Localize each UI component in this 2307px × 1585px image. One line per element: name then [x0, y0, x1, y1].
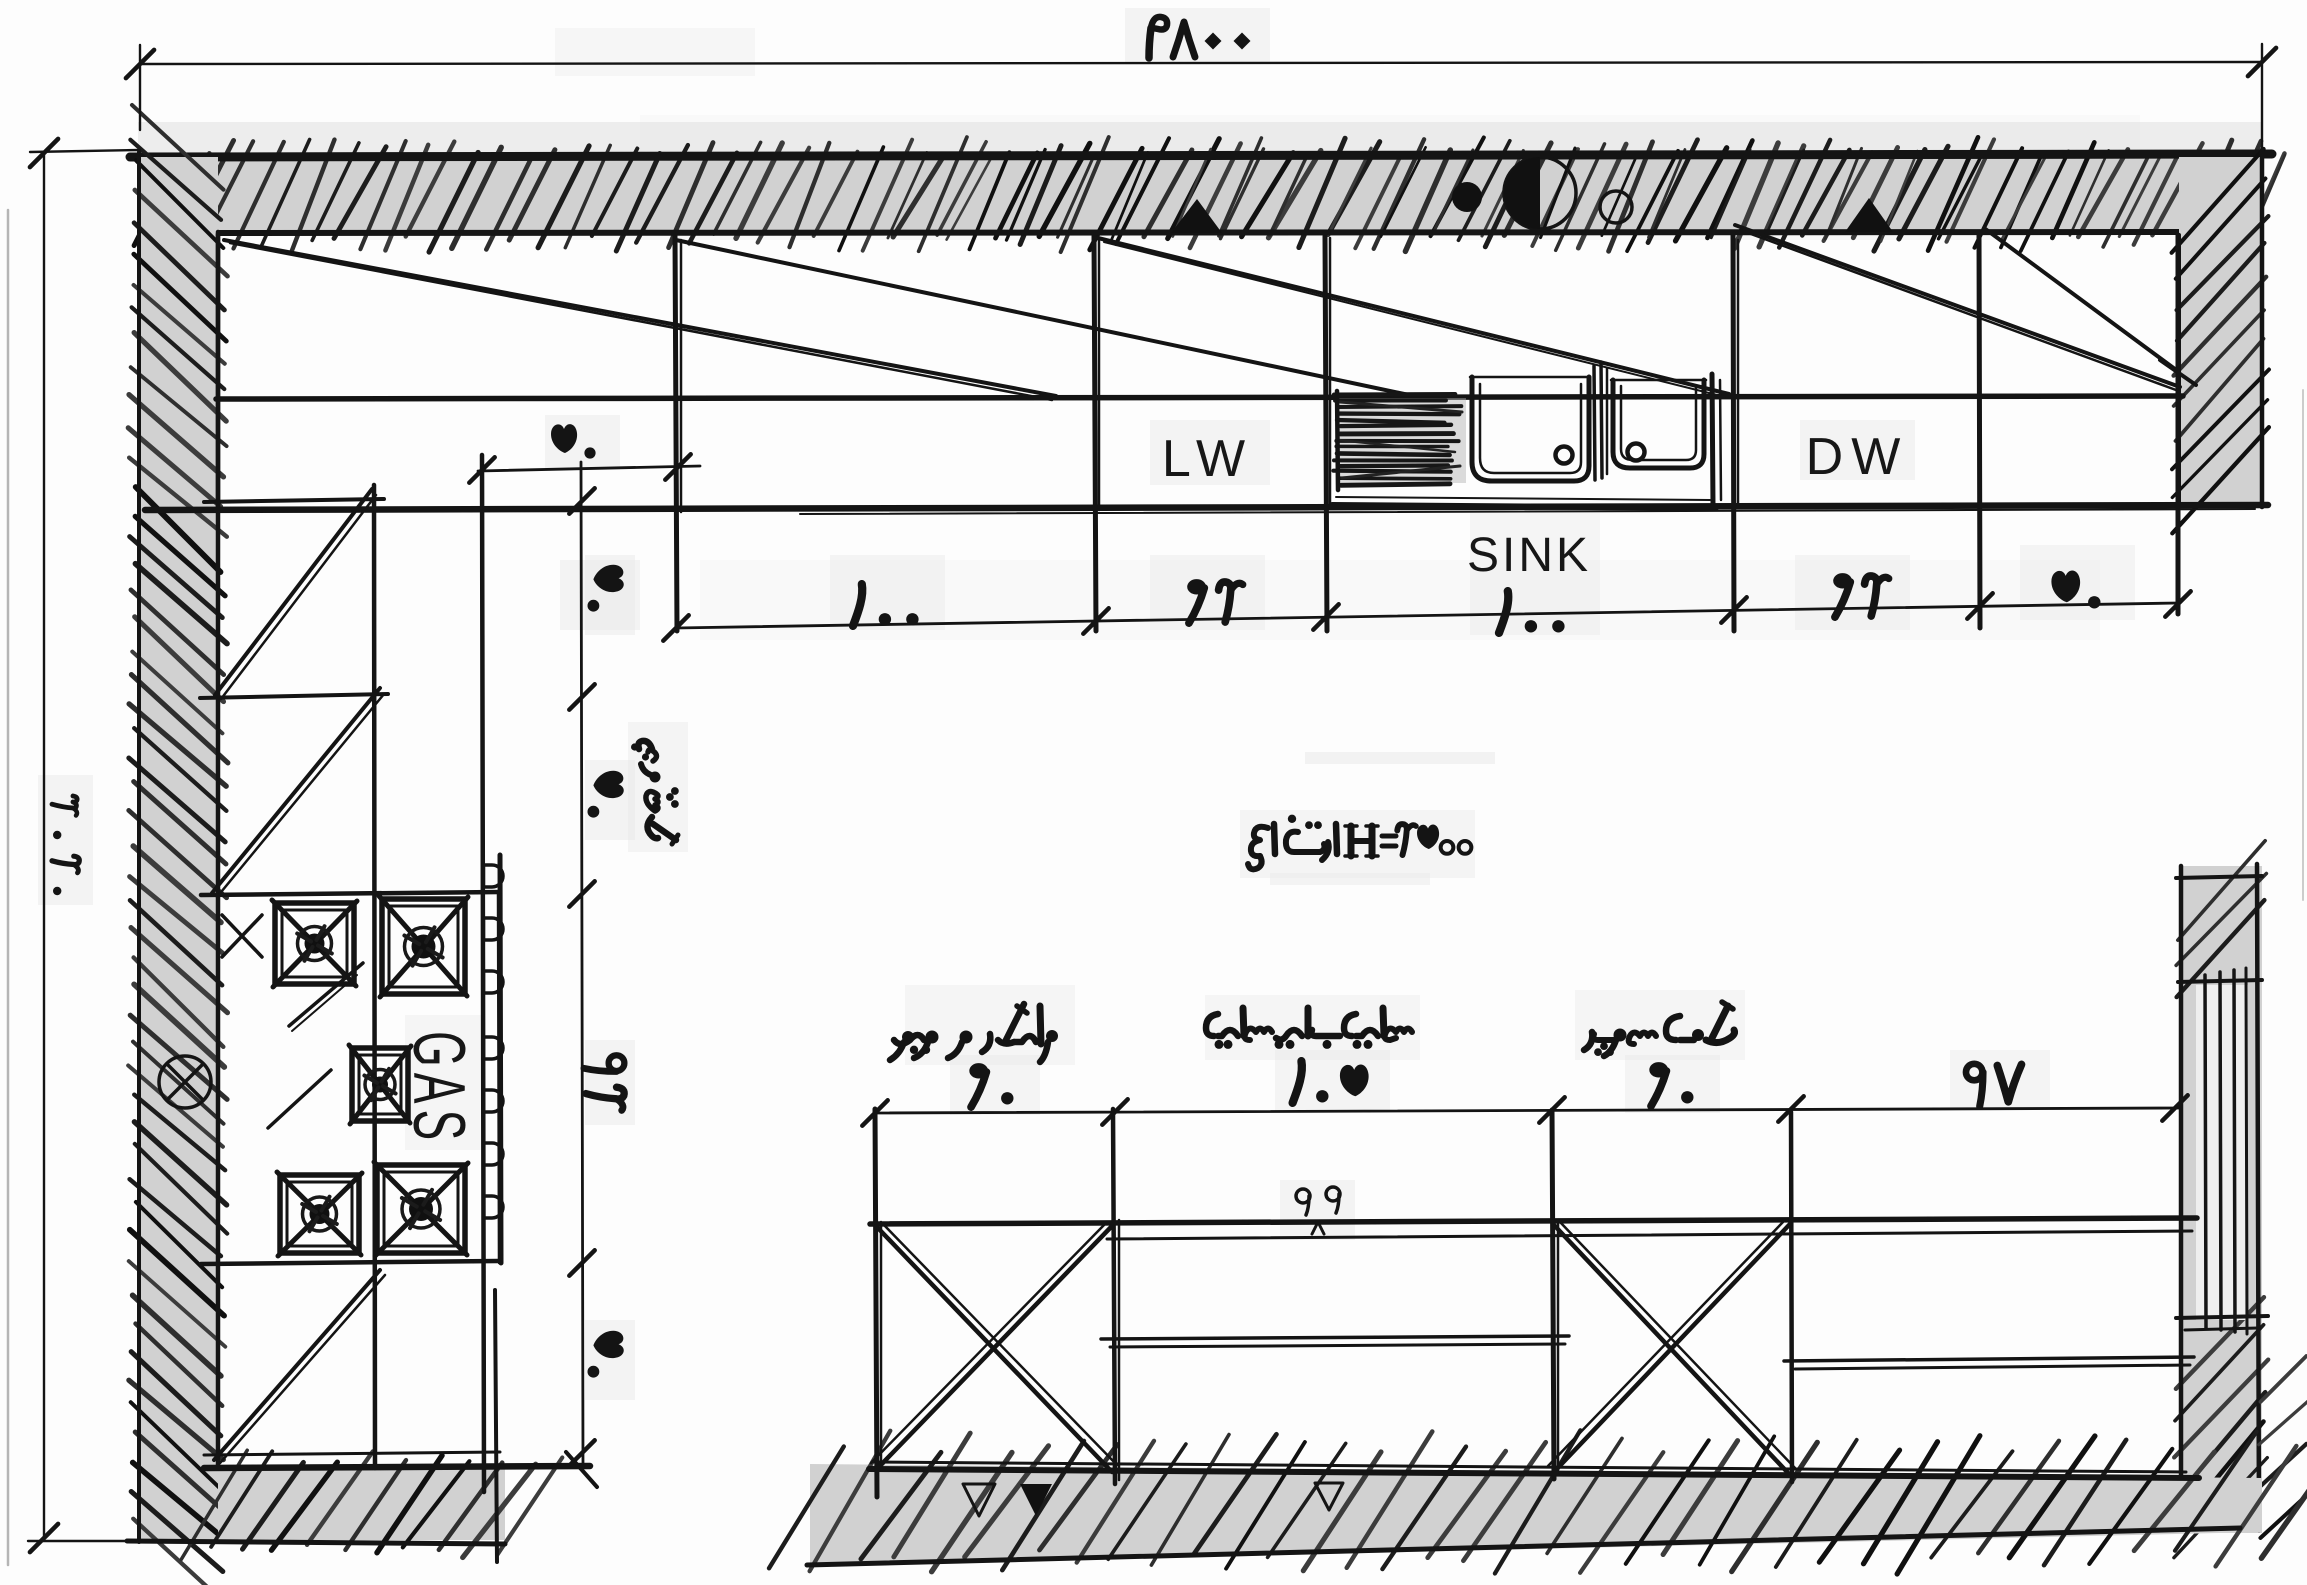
svg-text:GAS: GAS — [397, 1031, 480, 1146]
svg-text:DW: DW — [1806, 428, 1909, 486]
svg-text:SINK: SINK — [1467, 529, 1591, 582]
svg-text:LW: LW — [1162, 430, 1254, 488]
